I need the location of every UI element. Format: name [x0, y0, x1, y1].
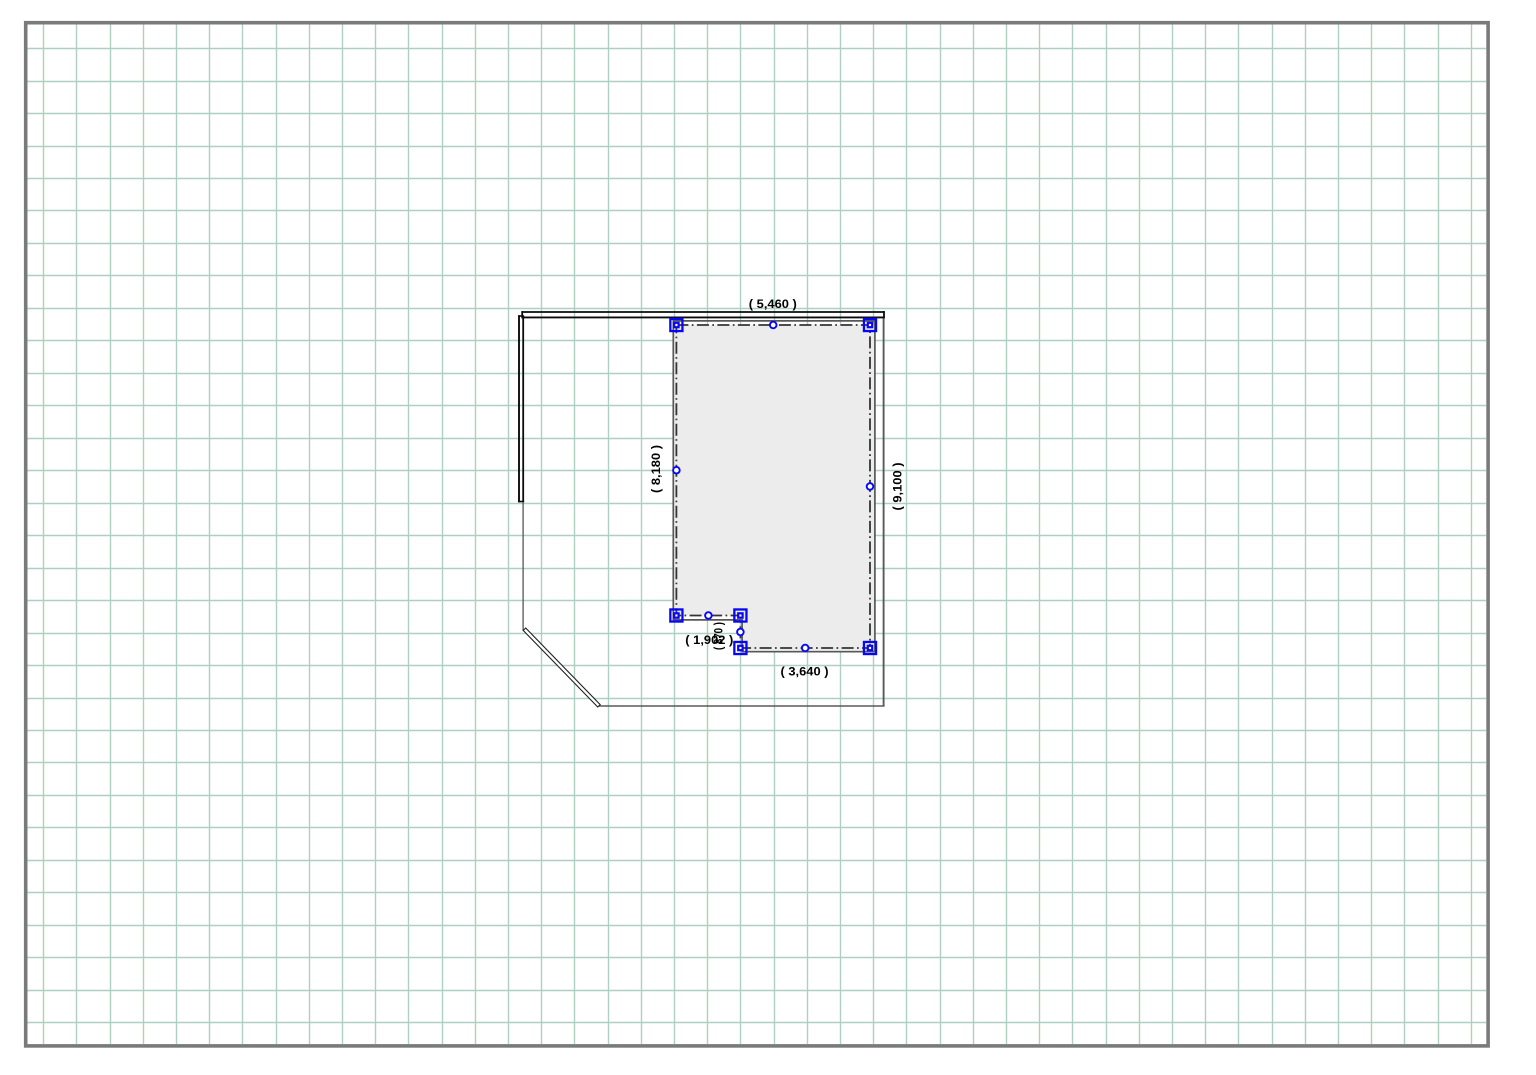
svg-text:( 9,100 ): ( 9,100 ) [890, 463, 904, 511]
svg-text:( 870 ): ( 870 ) [711, 622, 725, 650]
svg-text:( 5,460 ): ( 5,460 ) [749, 297, 797, 311]
svg-text:( 8,180 ): ( 8,180 ) [649, 445, 663, 493]
svg-text:( 1,902 ): ( 1,902 ) [685, 633, 733, 647]
svg-text:( 3,640 ): ( 3,640 ) [781, 664, 829, 678]
